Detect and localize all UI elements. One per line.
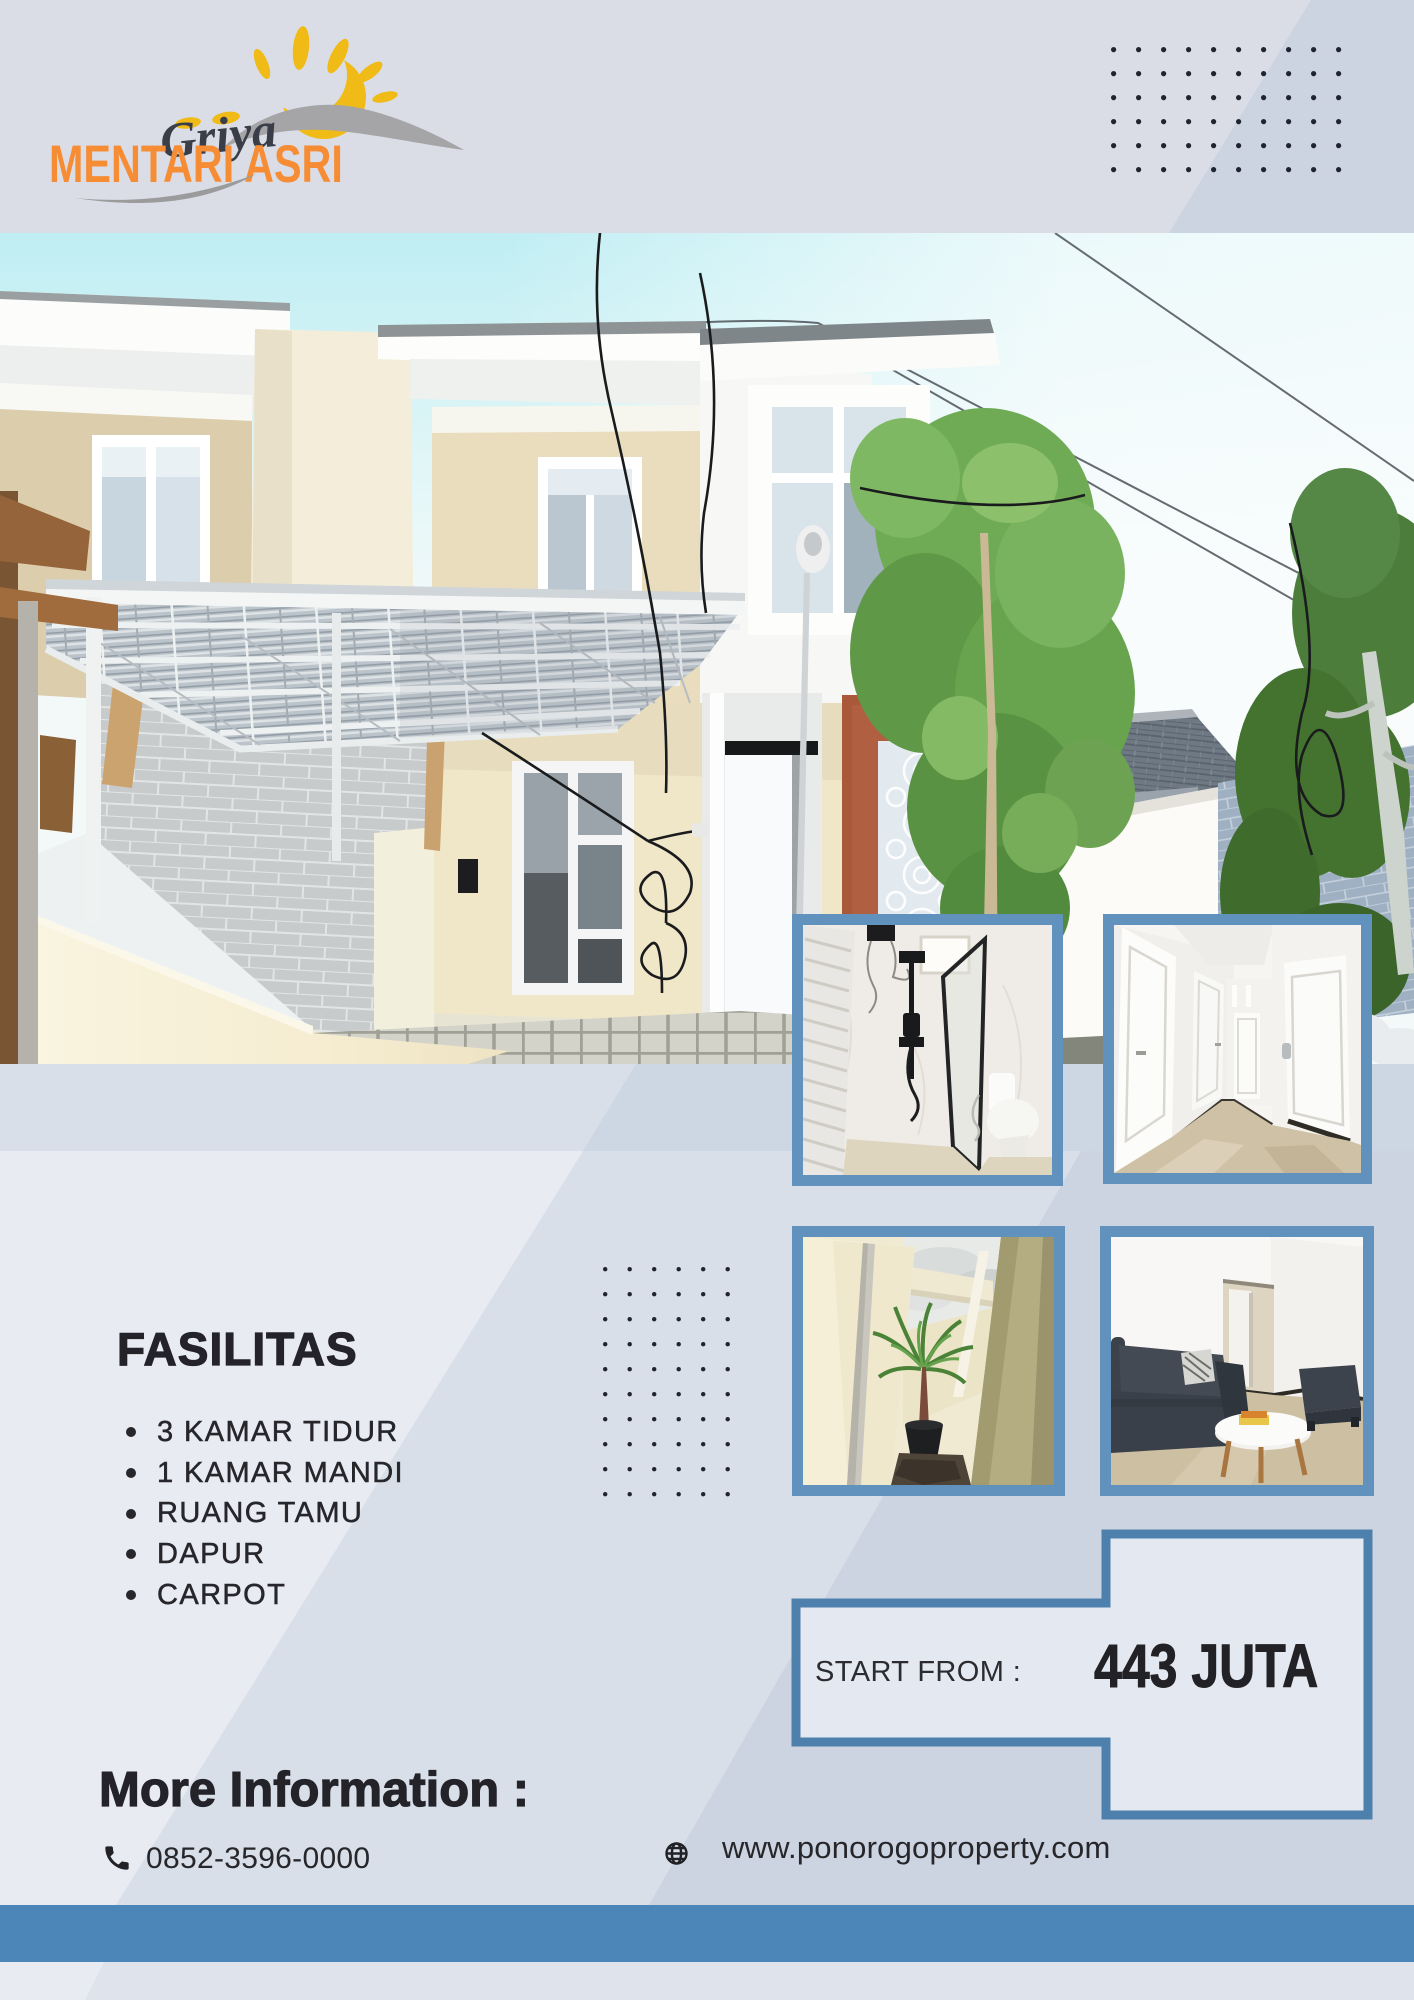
svg-text:MENTARI ASRI: MENTARI ASRI xyxy=(49,135,343,194)
